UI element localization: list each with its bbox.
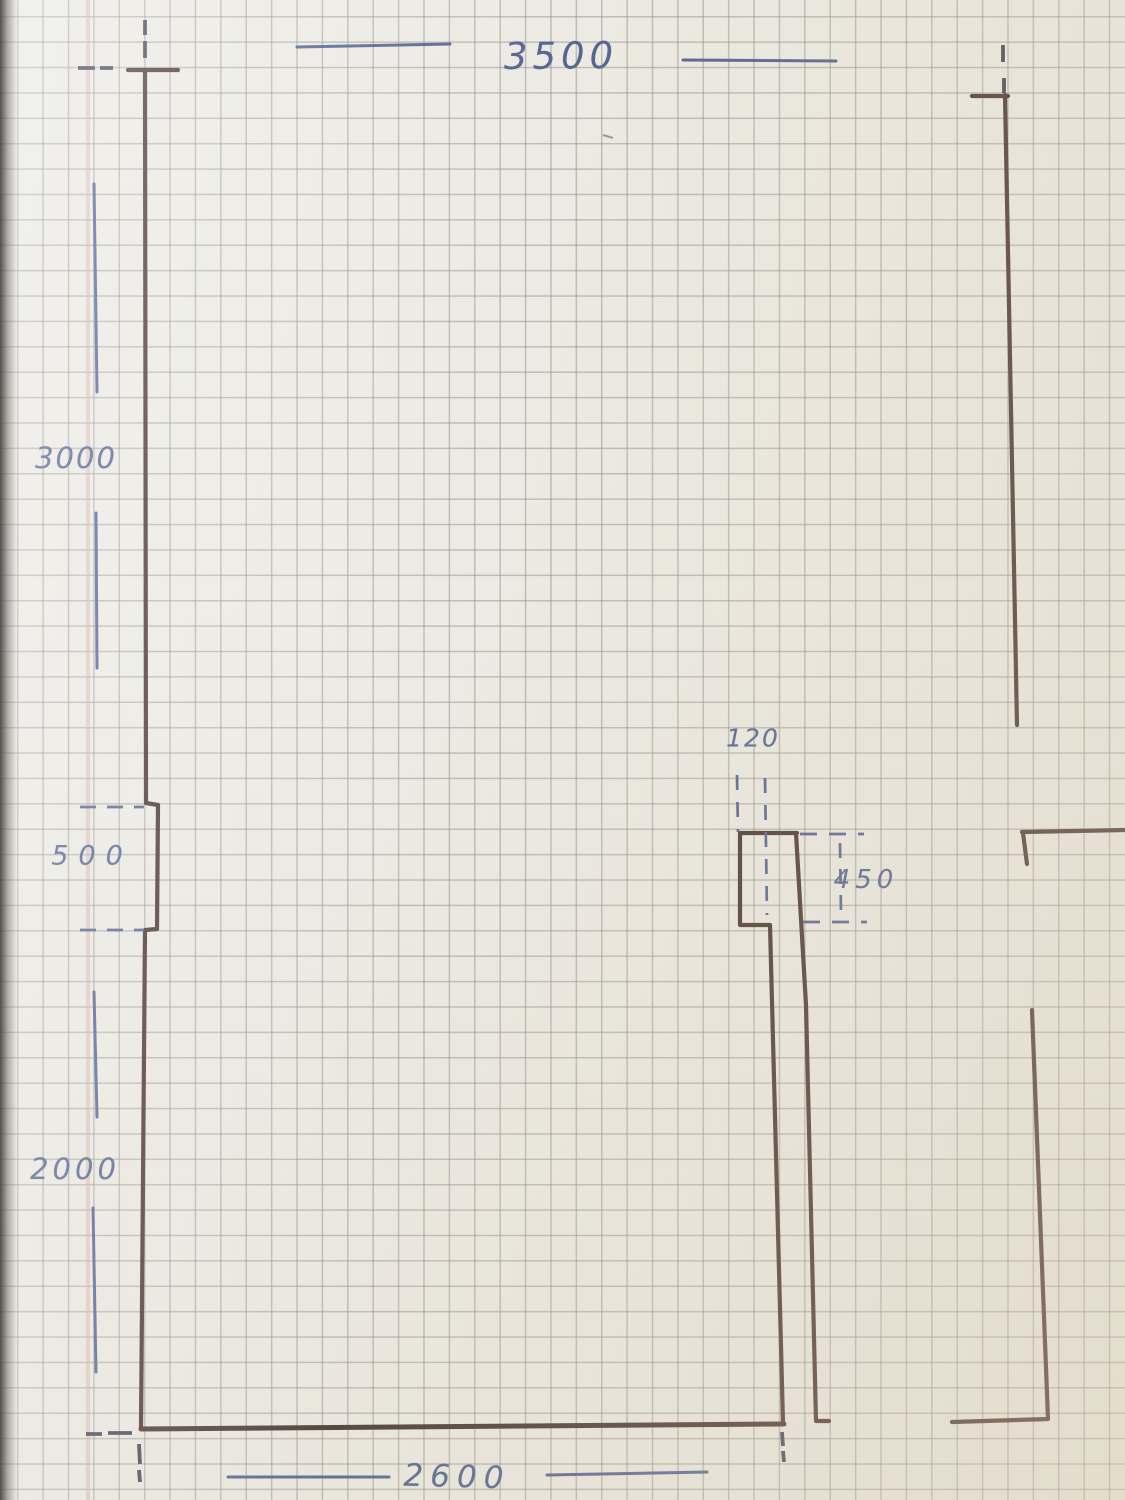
right-mid-wall — [1022, 830, 1125, 864]
dim-3000-line-upper — [94, 184, 97, 392]
right-upper-wall — [1005, 95, 1017, 725]
dim-label-left-upper-height: 3000 — [35, 441, 117, 475]
top-right-dashes — [1003, 45, 1004, 93]
floor-plan-sketch-photo: 3500 3000 500 2000 120 450 2600 — [0, 0, 1125, 1500]
dim-label-wall-thickness: 120 — [726, 724, 780, 753]
middle-wall-bottom-dashes — [782, 1432, 784, 1462]
dim-label-top-width: 3500 — [504, 34, 619, 78]
bottom-wall — [141, 1424, 784, 1429]
dim-3500-line-left — [297, 44, 450, 47]
stray-pen-mark — [603, 135, 613, 138]
bottom-right-wall — [952, 1010, 1048, 1422]
bottom-left-dashes — [86, 1433, 140, 1482]
dim-label-bottom-width: 2600 — [403, 1458, 511, 1497]
dim-2000-line-lower — [93, 1208, 96, 1372]
wall-120-dashed-right — [765, 778, 767, 915]
dim-label-recess-depth: 450 — [834, 865, 899, 895]
dim-3000-line-lower — [96, 513, 97, 668]
dim-label-left-lower-height: 2000 — [30, 1152, 120, 1186]
wall-120-dashed-left — [737, 775, 738, 832]
dimension-lines — [93, 44, 836, 1477]
dim-2600-line-right — [547, 1472, 707, 1475]
walls — [128, 70, 1125, 1429]
dim-label-left-recess-height: 500 — [51, 841, 133, 872]
middle-wall-left-face — [740, 833, 797, 1423]
dim-2000-line-upper — [94, 992, 97, 1117]
page-edge-shadow — [0, 0, 17, 1500]
top-left-dashes — [78, 20, 145, 68]
left-wall — [141, 70, 158, 1429]
floorplan-drawing — [0, 0, 1125, 1500]
corner-dash-marks — [78, 20, 1004, 1482]
dashed-construction-lines — [80, 775, 867, 930]
dim-3500-line-right — [683, 60, 836, 61]
